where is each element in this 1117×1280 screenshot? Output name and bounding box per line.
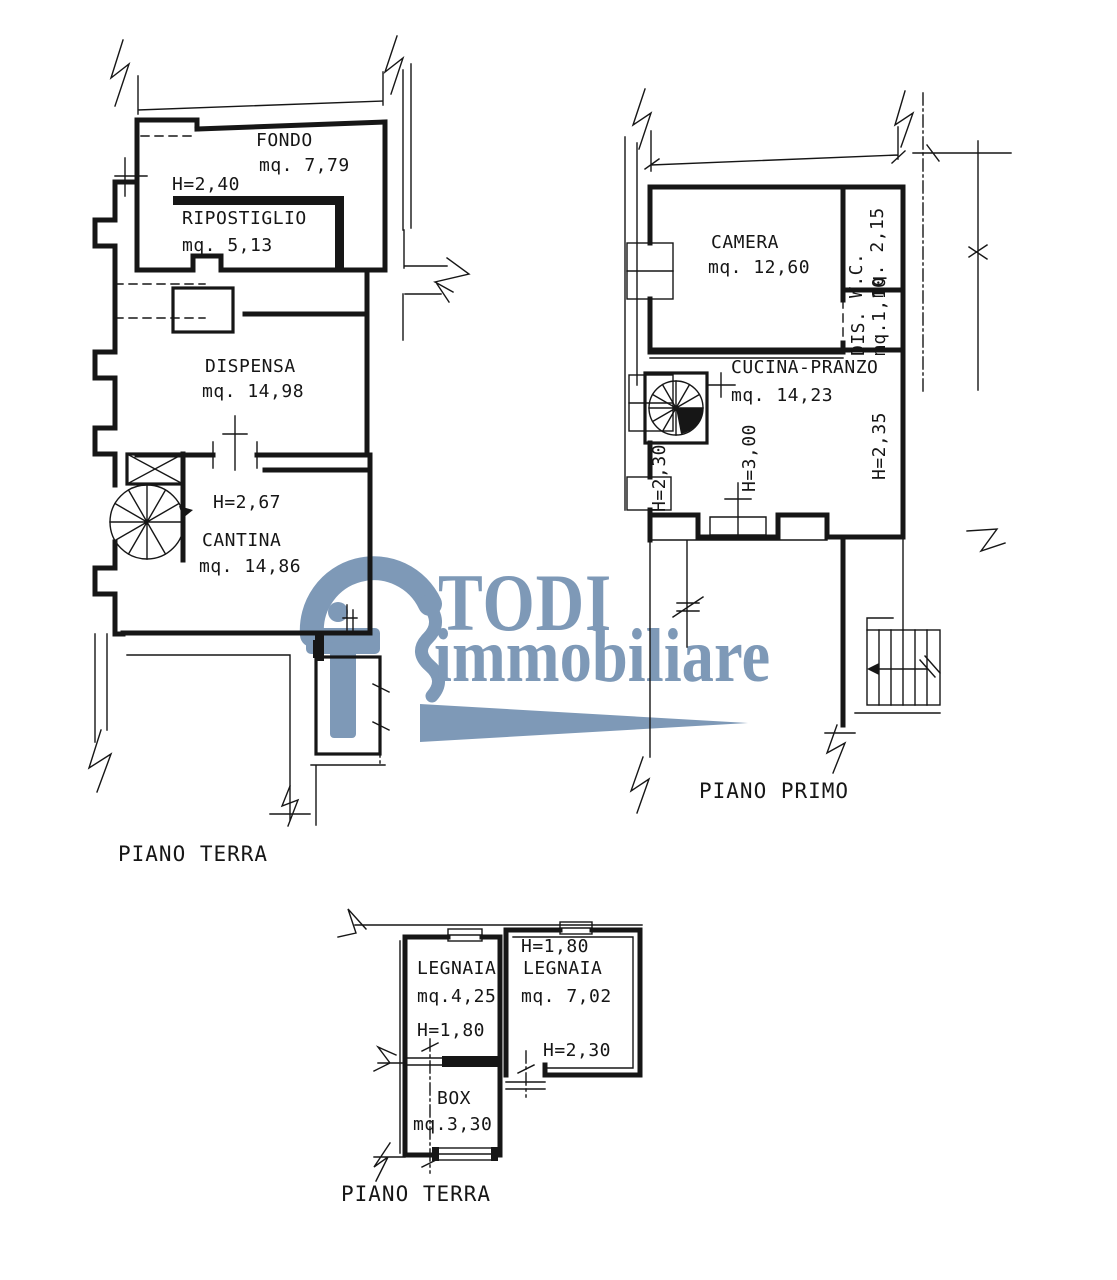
room-area-fondo: mq. 7,79 [259,155,350,177]
room-label-cantina: CANTINA [202,530,281,552]
room-label-box: BOX [437,1088,471,1110]
height-label-legnaia-left: H=1,80 [417,1020,485,1042]
annex-plan-drawing [330,905,680,1215]
height-label-right: H=2,35 [869,412,890,480]
room-label-ripostiglio: RIPOSTIGLIO [182,208,307,230]
room-area-legnaia-right: mq. 7,02 [521,986,612,1008]
room-label-legnaia-right: LEGNAIA [523,958,602,980]
floor-plan-document: TODI immobiliare [0,0,1117,1280]
room-label-legnaia-left: LEGNAIA [417,958,496,980]
room-area-box: mq.3,30 [413,1114,492,1136]
first-floor-plan-drawing [615,85,1015,805]
room-area-camera: mq. 12,60 [708,257,810,279]
balcony-and-stairs [631,537,940,813]
plan-caption-first: PIANO PRIMO [699,780,849,802]
height-label-legnaia-right-bottom: H=2,30 [543,1040,611,1062]
room-area-dispensa: mq. 14,98 [202,381,304,403]
room-area-legnaia-left: mq.4,25 [417,986,496,1008]
height-label-ripostiglio: H=2,40 [172,174,240,196]
plan-caption-annex: PIANO TERRA [341,1183,491,1205]
height-label-legnaia-right-top: H=1,80 [521,936,589,958]
room-area-ripostiglio: mq. 5,13 [182,235,273,257]
room-area-cucina: mq. 14,23 [731,385,833,407]
height-label-cantina: H=2,67 [213,492,281,514]
dimension-lines [625,89,1011,551]
room-label-dispensa: DISPENSA [205,356,296,378]
height-label-left: H=2,30 [649,444,670,512]
room-label-camera: CAMERA [711,232,779,254]
room-label-dis: DIS. mq.1,10 [848,277,890,356]
spiral-staircase-icon [649,381,703,435]
room-label-fondo: FONDO [256,130,313,152]
dimension-lines [111,36,469,340]
room-area-cantina: mq. 14,86 [199,556,301,578]
plan-caption-ground: PIANO TERRA [118,843,268,865]
courtyard-lines [89,634,389,826]
height-label-cucina: H=3,00 [739,424,760,492]
room-label-cucina: CUCINA-PRANZO [731,357,878,379]
